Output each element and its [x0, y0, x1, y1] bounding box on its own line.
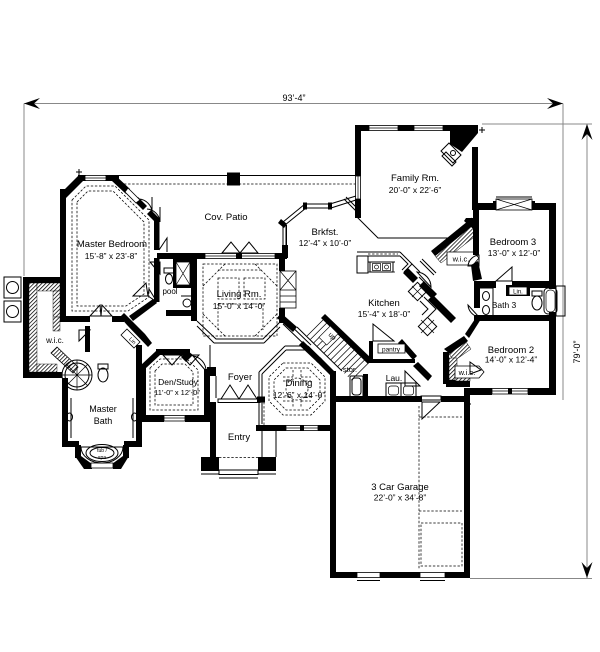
svg-text:Master Bedroom: Master Bedroom [77, 239, 147, 250]
svg-text:Den/Study: Den/Study [158, 377, 198, 387]
svg-text:14’-0” x 12’-4”: 14’-0” x 12’-4” [485, 355, 538, 365]
svg-text:Kitchen: Kitchen [368, 298, 400, 309]
svg-text:13’-0” x 12’-0”: 13’-0” x 12’-0” [488, 248, 541, 258]
svg-text:15’-0” x 14’-0”: 15’-0” x 14’-0” [213, 301, 266, 311]
svg-text:Cov. Patio: Cov. Patio [204, 212, 247, 223]
svg-text:tub /: tub / [97, 448, 107, 454]
svg-text:Bedroom 3: Bedroom 3 [490, 237, 536, 248]
svg-text:spa: spa [98, 455, 106, 461]
svg-text:Entry: Entry [228, 432, 250, 443]
svg-text:pantry: pantry [382, 347, 401, 354]
svg-text:Brkfst.: Brkfst. [312, 227, 339, 238]
svg-text:Living Rm.: Living Rm. [217, 289, 262, 300]
svg-text:79’-0”: 79’-0” [572, 340, 582, 363]
svg-text:20’-0” x 22’-6”: 20’-0” x 22’-6” [389, 185, 442, 195]
svg-text:12’-4” x 10’-0”: 12’-4” x 10’-0” [299, 238, 352, 248]
svg-text:Lin.: Lin. [513, 290, 523, 296]
svg-text:12’-6” x 14’-0”: 12’-6” x 14’-0” [273, 390, 326, 400]
svg-text:Lau.: Lau. [386, 373, 403, 383]
svg-text:w.i.c.: w.i.c. [452, 255, 470, 264]
svg-text:15’-4” x 18’-0”: 15’-4” x 18’-0” [358, 309, 411, 319]
svg-text:w.i.c.: w.i.c. [45, 336, 64, 345]
svg-text:Bath 3: Bath 3 [492, 300, 517, 310]
svg-text:stor.: stor. [343, 365, 357, 374]
svg-text:3 Car Garage: 3 Car Garage [371, 482, 429, 493]
svg-text:pool: pool [162, 287, 177, 296]
svg-text:15’-8” x 23’-8”: 15’-8” x 23’-8” [85, 251, 138, 261]
svg-text:11’-0” x 12’-0”: 11’-0” x 12’-0” [154, 388, 200, 397]
svg-text:Family Rm.: Family Rm. [391, 173, 439, 184]
svg-text:Bath: Bath [94, 416, 113, 426]
svg-text:Foyer: Foyer [228, 372, 252, 383]
svg-text:Dining: Dining [286, 378, 313, 389]
svg-text:Master: Master [89, 404, 117, 414]
svg-text:93’-4”: 93’-4” [282, 93, 305, 103]
svg-text:22’-0” x 34’-8”: 22’-0” x 34’-8” [374, 493, 427, 503]
